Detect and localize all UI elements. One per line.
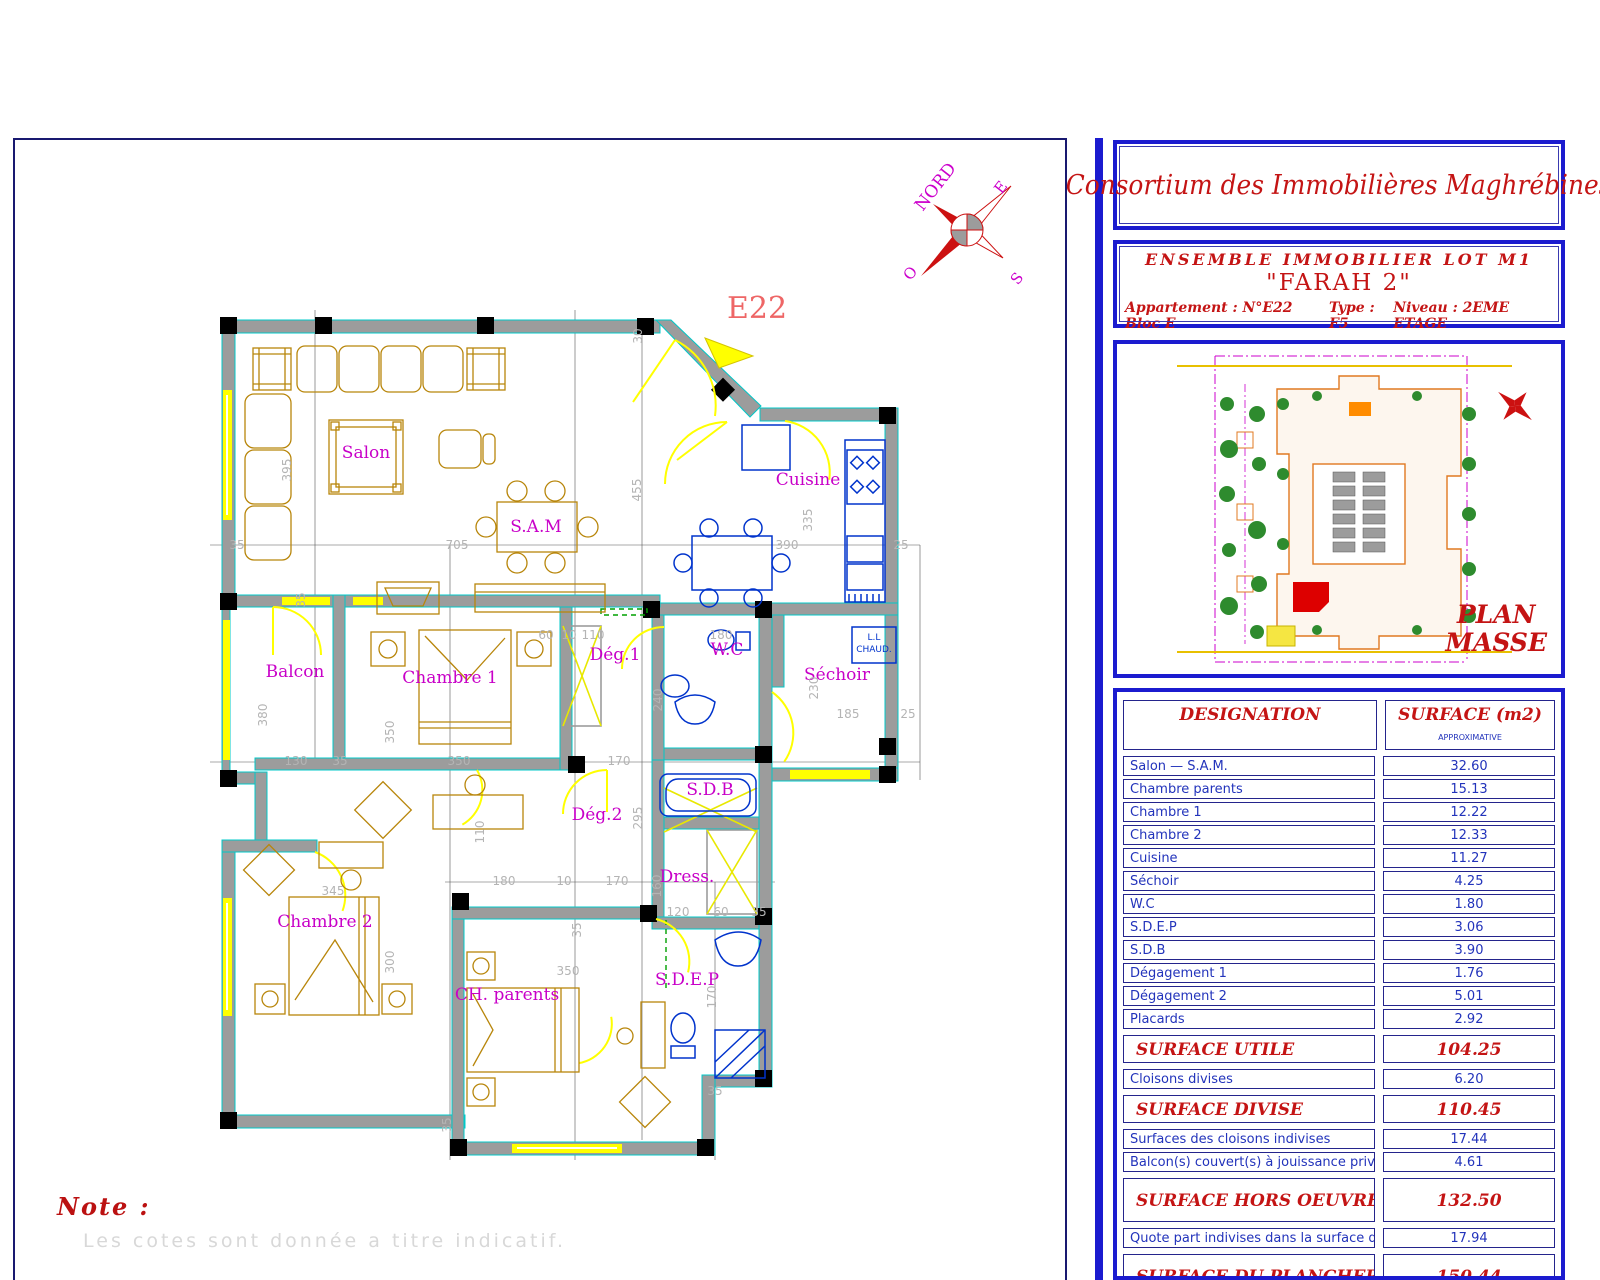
row-value: 1.76 xyxy=(1383,963,1555,983)
row-label: SURFACE UTILE xyxy=(1123,1035,1375,1063)
row-label: Séchoir xyxy=(1123,871,1375,891)
row-label: Placards xyxy=(1123,1009,1375,1029)
plan-masse-title: PLAN MASSE xyxy=(1445,601,1547,656)
row-label: S.D.E.P xyxy=(1123,917,1375,937)
row-value: 4.25 xyxy=(1383,871,1555,891)
dimension-text: 350 xyxy=(557,964,580,978)
structural-columns xyxy=(220,317,896,1156)
walls xyxy=(222,320,898,1155)
project-line1: ENSEMBLE IMMOBILIER LOT M1 xyxy=(1125,250,1553,269)
site-entry-marker xyxy=(1349,402,1371,416)
dimension-text: 335 xyxy=(801,509,815,532)
room-label: Cuisine xyxy=(776,470,841,490)
dimension-text: 35 xyxy=(294,592,308,607)
row-value: 3.06 xyxy=(1383,917,1555,937)
dimension-text: 170 xyxy=(705,986,719,1009)
row-value: 17.94 xyxy=(1383,1228,1555,1248)
table-row: SURFACE HORS OEUVRE 132.50 xyxy=(1123,1178,1555,1222)
niveau-label: Niveau : 2EME ETAGE xyxy=(1393,300,1553,332)
project-name: "FARAH 2" xyxy=(1125,270,1553,296)
row-value: 32.60 xyxy=(1383,756,1555,776)
row-label: SURFACE HORS OEUVRE xyxy=(1123,1178,1375,1222)
table-row: Chambre 2 12.33 xyxy=(1123,825,1555,845)
room-label: Chambre 1 xyxy=(402,668,498,688)
room-label: Dég.1 xyxy=(590,645,641,665)
dimension-text: 35 xyxy=(707,1084,722,1098)
site-hatch-area xyxy=(1267,626,1295,646)
dimension-text: 130 xyxy=(285,754,308,768)
row-label: Salon — S.A.M. xyxy=(1123,756,1375,776)
table-row: Chambre parents 15.13 xyxy=(1123,779,1555,799)
room-label: CH. parents xyxy=(455,985,559,1005)
dimension-text: 10 xyxy=(556,874,571,888)
table-row: SURFACE UTILE 104.25 xyxy=(1123,1035,1555,1063)
table-row: Quote part indivises dans la surface du … xyxy=(1123,1228,1555,1248)
dimension-text: 60 xyxy=(538,628,553,642)
table-row: S.D.B 3.90 xyxy=(1123,940,1555,960)
row-label: Cloisons divises xyxy=(1123,1069,1375,1089)
row-label: Surfaces des cloisons indivises xyxy=(1123,1129,1375,1149)
dimension-text: 390 xyxy=(776,538,799,552)
table-row: Séchoir 4.25 xyxy=(1123,871,1555,891)
row-label: Chambre 1 xyxy=(1123,802,1375,822)
row-value: 110.45 xyxy=(1383,1095,1555,1123)
dimension-text: 380 xyxy=(256,704,270,727)
table-row: SURFACE DU PLANCHER 150.44 xyxy=(1123,1254,1555,1280)
row-label: Dégagement 2 xyxy=(1123,986,1375,1006)
compass-west-label: O xyxy=(899,263,921,284)
dimension-text: 350 xyxy=(383,721,397,744)
row-value: 104.25 xyxy=(1383,1035,1555,1063)
designation-header: DESIGNATION xyxy=(1123,700,1377,750)
table-row: W.C 1.80 xyxy=(1123,894,1555,914)
floor-plan-sheet: L.L CHAUD. E22 NORD E S O SalonS.A.MCuis… xyxy=(13,138,1067,1280)
table-row: Dégagement 2 5.01 xyxy=(1123,986,1555,1006)
row-label: Balcon(s) couvert(s) à jouissance privat… xyxy=(1123,1152,1375,1172)
row-label: SURFACE DIVISE xyxy=(1123,1095,1375,1123)
row-value: 132.50 xyxy=(1383,1178,1555,1222)
dimension-text: 110 xyxy=(473,821,487,844)
room-label: Salon xyxy=(342,443,390,463)
heater-label-1: L.L xyxy=(868,633,881,643)
table-row: Salon — S.A.M. 32.60 xyxy=(1123,756,1555,776)
surface-header: SURFACE (m2) APPROXIMATIVE xyxy=(1385,700,1555,750)
dimension-text: 30 xyxy=(631,328,645,343)
table-row: Dégagement 1 1.76 xyxy=(1123,963,1555,983)
table-row: Placards 2.92 xyxy=(1123,1009,1555,1029)
row-value: 12.33 xyxy=(1383,825,1555,845)
room-label: Chambre 2 xyxy=(277,912,373,932)
panel-divider-bar xyxy=(1095,138,1103,1280)
dimension-text: 35 xyxy=(570,922,584,937)
plan-masse-box: PLAN MASSE xyxy=(1113,340,1565,678)
table-row: S.D.E.P 3.06 xyxy=(1123,917,1555,937)
dimension-text: 300 xyxy=(383,951,397,974)
dimension-text: 170 xyxy=(608,754,631,768)
dimension-text: 160 xyxy=(650,875,664,898)
room-label: W.C xyxy=(711,640,744,660)
dimension-text: 25 xyxy=(900,707,915,721)
row-value: 2.92 xyxy=(1383,1009,1555,1029)
row-value: 17.44 xyxy=(1383,1129,1555,1149)
project-info-box: ENSEMBLE IMMOBILIER LOT M1 "FARAH 2" App… xyxy=(1113,240,1565,328)
dimension-text: 395 xyxy=(280,459,294,482)
dimension-text: 345 xyxy=(322,884,345,898)
dimension-text: 10 xyxy=(561,628,576,642)
row-label: Dégagement 1 xyxy=(1123,963,1375,983)
dimension-text: 295 xyxy=(631,807,645,830)
dimension-text: 180 xyxy=(493,874,516,888)
dimension-text: 230 xyxy=(807,677,821,700)
row-label: S.D.B xyxy=(1123,940,1375,960)
row-value: 5.01 xyxy=(1383,986,1555,1006)
compass-east-label: E xyxy=(990,177,1011,197)
table-row: Cuisine 11.27 xyxy=(1123,848,1555,868)
note-text: Les cotes sont donnée a titre indicatif. xyxy=(83,1230,566,1252)
dimension-text: 35 xyxy=(751,905,766,919)
room-label: Dég.2 xyxy=(572,805,623,825)
row-label: Chambre 2 xyxy=(1123,825,1375,845)
dimension-text: 170 xyxy=(606,874,629,888)
row-label: Chambre parents xyxy=(1123,779,1375,799)
dimension-text: 35 xyxy=(440,1117,454,1132)
floor-plan-drawing: L.L CHAUD. E22 NORD E S O SalonS.A.MCuis… xyxy=(15,140,1065,1280)
row-value: 6.20 xyxy=(1383,1069,1555,1089)
dimension-text: 185 xyxy=(837,707,860,721)
row-label: SURFACE DU PLANCHER xyxy=(1123,1254,1375,1280)
room-label: S.D.B xyxy=(686,780,733,800)
dimension-text: 705 xyxy=(446,538,469,552)
company-name: Consortium des Immobilières Maghrébines xyxy=(1066,170,1600,201)
room-label: Dress. xyxy=(660,867,715,887)
apartment-label: Appartement : N°E22 Bloc E xyxy=(1125,300,1329,332)
note-title: Note : xyxy=(57,1192,151,1221)
row-label: Cuisine xyxy=(1123,848,1375,868)
heater-label-2: CHAUD. xyxy=(856,645,892,655)
dimension-text: 35 xyxy=(332,754,347,768)
row-label: Quote part indivises dans la surface du … xyxy=(1123,1228,1375,1248)
row-value: 11.27 xyxy=(1383,848,1555,868)
room-label: Balcon xyxy=(266,662,325,682)
table-header: DESIGNATION SURFACE (m2) APPROXIMATIVE xyxy=(1123,700,1555,750)
table-row: Chambre 1 12.22 xyxy=(1123,802,1555,822)
dimension-text: 120 xyxy=(667,905,690,919)
dimension-text: 240 xyxy=(651,689,665,712)
row-value: 150.44 xyxy=(1383,1254,1555,1280)
dimension-text: 60 xyxy=(713,905,728,919)
table-row: Surfaces des cloisons indivises 17.44 xyxy=(1123,1129,1555,1149)
compass-icon: NORD E S O xyxy=(899,159,1027,288)
row-value: 15.13 xyxy=(1383,779,1555,799)
dimension-text: 25 xyxy=(893,538,908,552)
table-row: Cloisons divises 6.20 xyxy=(1123,1069,1555,1089)
table-row: SURFACE DIVISE 110.45 xyxy=(1123,1095,1555,1123)
compass-south-label: S xyxy=(1007,269,1028,288)
dimension-text: 110 xyxy=(582,628,605,642)
row-label: W.C xyxy=(1123,894,1375,914)
row-value: 12.22 xyxy=(1383,802,1555,822)
unit-label: E22 xyxy=(727,291,787,326)
approx-label: APPROXIMATIVE xyxy=(1438,733,1502,742)
site-compass-icon xyxy=(1487,378,1544,434)
row-value: 3.90 xyxy=(1383,940,1555,960)
surface-table-box: DESIGNATION SURFACE (m2) APPROXIMATIVE S… xyxy=(1113,688,1565,1280)
dimension-text: 180 xyxy=(710,628,733,642)
room-label: S.A.M xyxy=(510,517,562,537)
company-title-box: Consortium des Immobilières Maghrébines xyxy=(1113,140,1565,230)
dimension-text: 35 xyxy=(229,538,244,552)
drawing-sheet-stage: L.L CHAUD. E22 NORD E S O SalonS.A.MCuis… xyxy=(0,0,1600,1280)
surface-table: Salon — S.A.M. 32.60 Chambre parents 15.… xyxy=(1123,756,1555,1280)
dimension-text: 350 xyxy=(448,754,471,768)
dimension-text: 455 xyxy=(630,479,644,502)
row-value: 4.61 xyxy=(1383,1152,1555,1172)
table-row: Balcon(s) couvert(s) à jouissance privat… xyxy=(1123,1152,1555,1172)
type-label: Type : F5 xyxy=(1329,300,1393,332)
row-value: 1.80 xyxy=(1383,894,1555,914)
